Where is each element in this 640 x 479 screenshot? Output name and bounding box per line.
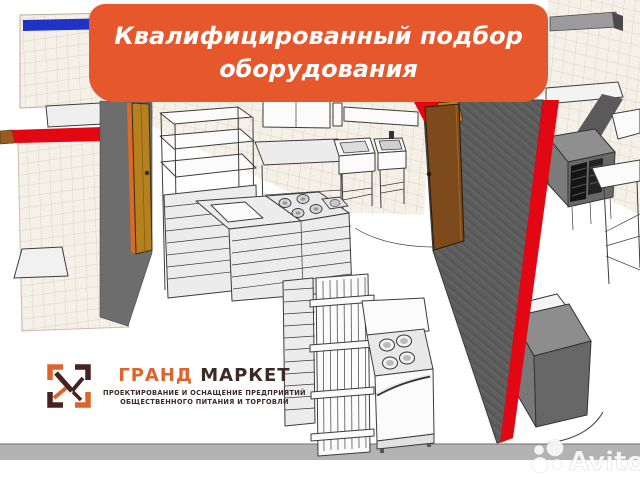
logo-tagline-line2: ОБЩЕСТВЕННОГО ПИТАНИЯ И ТОРГОВЛИ <box>103 398 306 407</box>
logo-title: ГРАНД МАРКЕТ <box>118 366 290 386</box>
left-wall-with-door <box>100 101 152 326</box>
faucet <box>389 131 394 139</box>
logo-tagline: ПРОЕКТИРОВАНИЕ И ОСНАЩЕНИЕ ПРЕДПРИЯТИЙ О… <box>103 389 306 406</box>
logo-title-market: МАРКЕТ <box>193 365 291 386</box>
banner-line1: Квалифицированный подбор <box>114 20 523 53</box>
logo-text: ГРАНД МАРКЕТ ПРОЕКТИРОВАНИЕ И ОСНАЩЕНИЕ … <box>103 366 306 406</box>
brown-door <box>425 104 464 250</box>
company-logo: ГРАНД МАРКЕТ ПРОЕКТИРОВАНИЕ И ОСНАЩЕНИЕ … <box>44 361 306 411</box>
overhead-cabinets <box>263 101 342 128</box>
logo-title-grand: ГРАНД <box>118 365 193 386</box>
advert-image: Квалифицированный подбор оборудования ГР… <box>0 0 640 479</box>
banner-line2: оборудования <box>219 53 418 86</box>
avito-watermark-graphic: Avito <box>528 436 640 479</box>
left-red-wall-edge <box>0 103 106 144</box>
avito-watermark-text: Avito <box>569 447 640 477</box>
door-handle <box>427 172 432 177</box>
floor-mat <box>14 247 68 278</box>
gold-door <box>132 103 152 254</box>
avito-watermark: Avito <box>528 436 640 479</box>
headline-banner: Квалифицированный подбор оборудования <box>89 4 548 102</box>
grandmarket-logo-icon <box>44 361 94 411</box>
door-handle <box>145 171 149 175</box>
right-work-table <box>592 160 640 284</box>
logo-tagline-line1: ПРОЕКТИРОВАНИЕ И ОСНАЩЕНИЕ ПРЕДПРИЯТИЙ <box>103 389 306 398</box>
door-swing-arc <box>355 228 433 247</box>
avito-dots-icon <box>532 440 564 474</box>
